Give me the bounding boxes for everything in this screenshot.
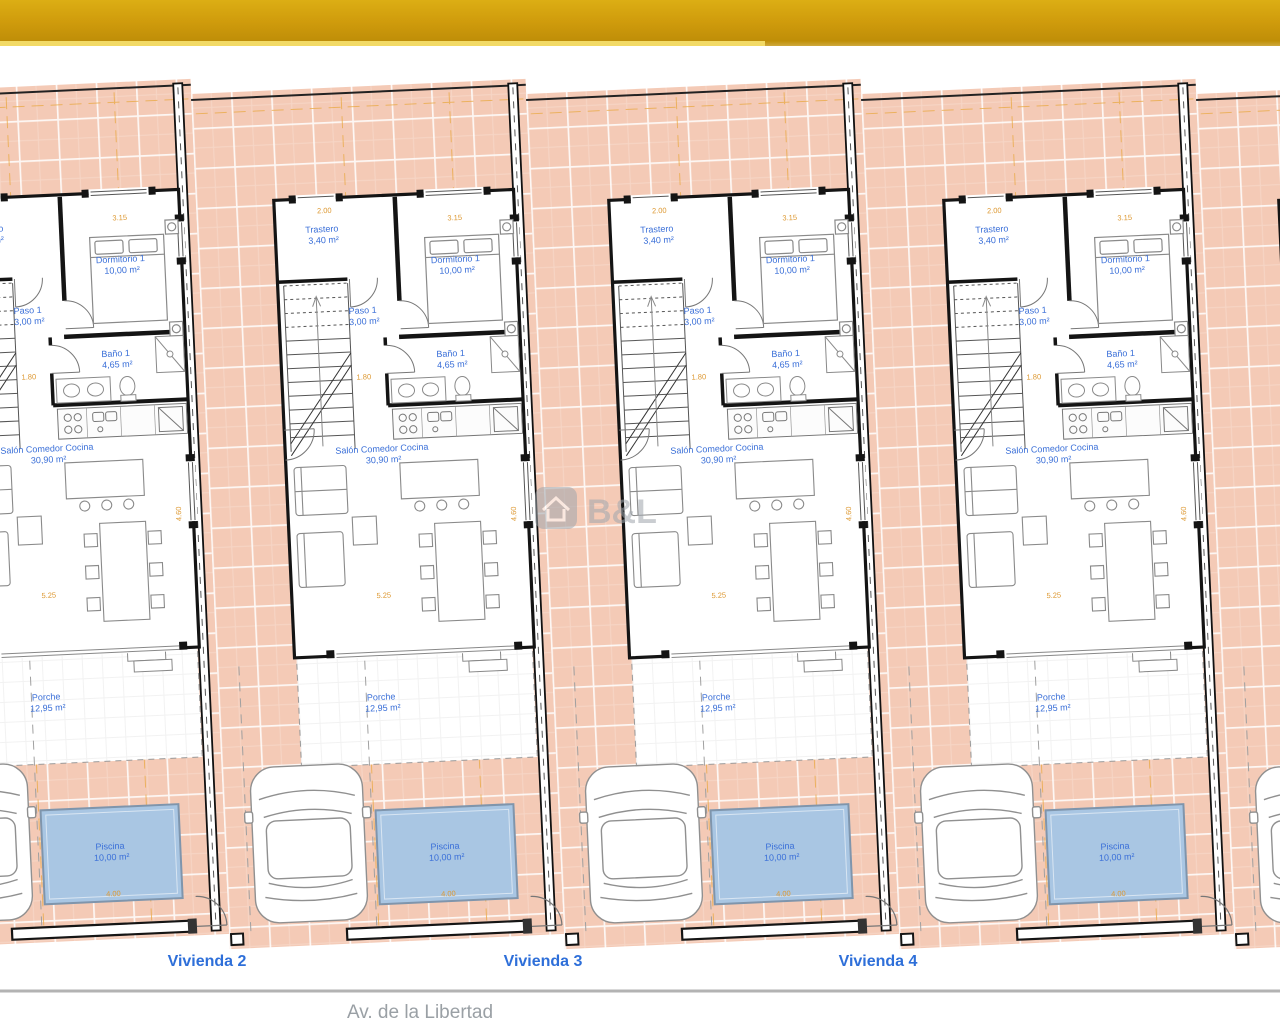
watermark: B&L [535,487,657,531]
header-bar-accent [0,41,765,46]
watermark-text: B&L [587,493,657,531]
unit-label-vivienda-3: Vivienda 3 [504,953,583,970]
header-bar [0,0,1280,41]
floor-plan-unit-2 [191,79,564,949]
unit-label-vivienda-4: Vivienda 4 [839,953,918,970]
house-logo-icon [535,487,577,529]
floor-plan-unit-1 [0,79,229,949]
street-label: Av. de la Libertad [347,1002,493,1023]
floor-plan-unit-4 [861,79,1234,949]
header-bar-accent-right [765,41,1280,46]
floor-plan-unit-3 [526,79,899,949]
unit-label-vivienda-2: Vivienda 2 [168,953,247,970]
site-plan: Trastero 3,40 m² Dormitorio 1 10,00 m² P… [0,0,1280,1024]
page: Trastero 3,40 m² Dormitorio 1 10,00 m² P… [0,0,1280,1024]
